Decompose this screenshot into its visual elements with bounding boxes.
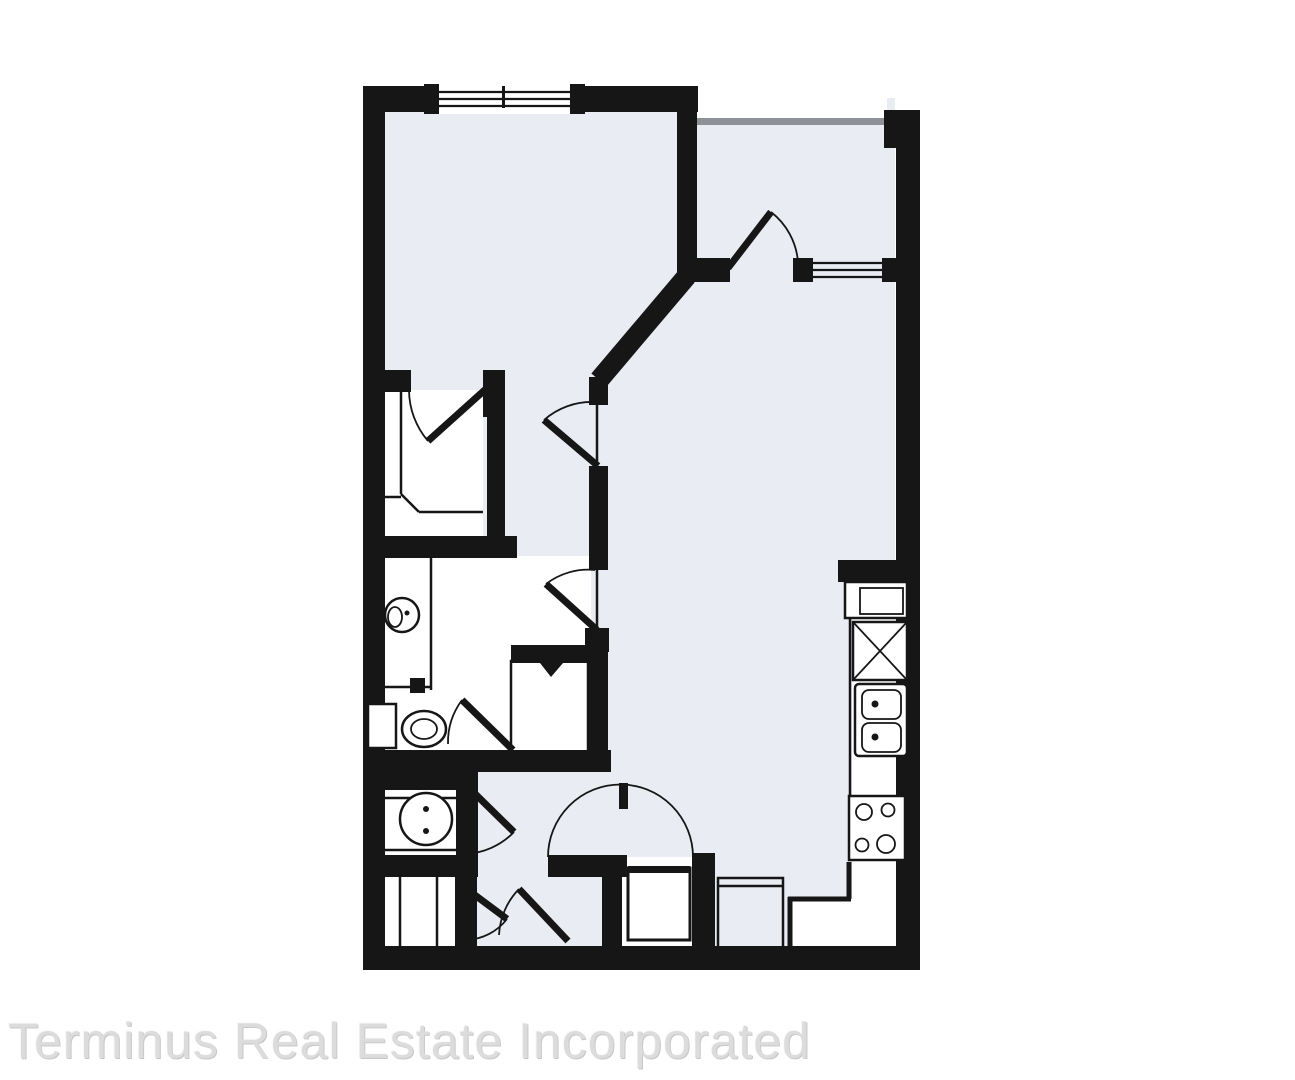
balcony-railing: [697, 118, 885, 125]
sink-drain: [872, 734, 879, 741]
washer: [400, 793, 452, 845]
wall-segment: [589, 466, 608, 570]
door-jamb: [793, 258, 813, 282]
window-mullion: [502, 86, 505, 108]
watermark-text: Terminus Real Estate Incorporated: [8, 1012, 811, 1070]
kitchen-counter-bottom: [790, 898, 897, 950]
water-heater: [628, 868, 690, 940]
walk-in-closet-floor: [385, 390, 483, 538]
vanity-end-jamb: [410, 678, 425, 693]
kitchen-stub-wall: [838, 560, 920, 582]
sink-drain: [872, 701, 879, 708]
toilet-tank: [368, 704, 396, 748]
wall-segment: [363, 766, 464, 790]
wall-segment: [487, 370, 505, 540]
wall-segment: [363, 536, 517, 558]
shelved-closet-floor: [383, 875, 456, 948]
wall-segment: [692, 853, 715, 968]
door-jamb: [589, 377, 608, 405]
wall-segment: [363, 370, 411, 392]
wall-segment: [363, 946, 920, 970]
entry-door-leaf-tick: [619, 783, 628, 809]
wall-segment: [456, 758, 478, 860]
window-jamb: [424, 84, 439, 114]
wall-post: [884, 110, 920, 148]
toilet: [402, 711, 446, 747]
floor-plan-drawing: [0, 0, 1295, 1080]
vanity-sink-drain: [405, 611, 410, 616]
washer-knob: [423, 806, 429, 812]
wall-segment: [602, 857, 622, 948]
wall-segment: [363, 855, 478, 877]
wall-segment: [677, 86, 697, 278]
water-heater-top: [628, 866, 690, 873]
washer-knob: [423, 828, 429, 834]
floor-plan-page: Terminus Real Estate Incorporated: [0, 0, 1295, 1080]
outside-above-balcony: [697, 80, 887, 120]
wall-segment: [882, 258, 920, 282]
window-jamb: [570, 84, 585, 114]
wall-segment: [363, 86, 385, 970]
